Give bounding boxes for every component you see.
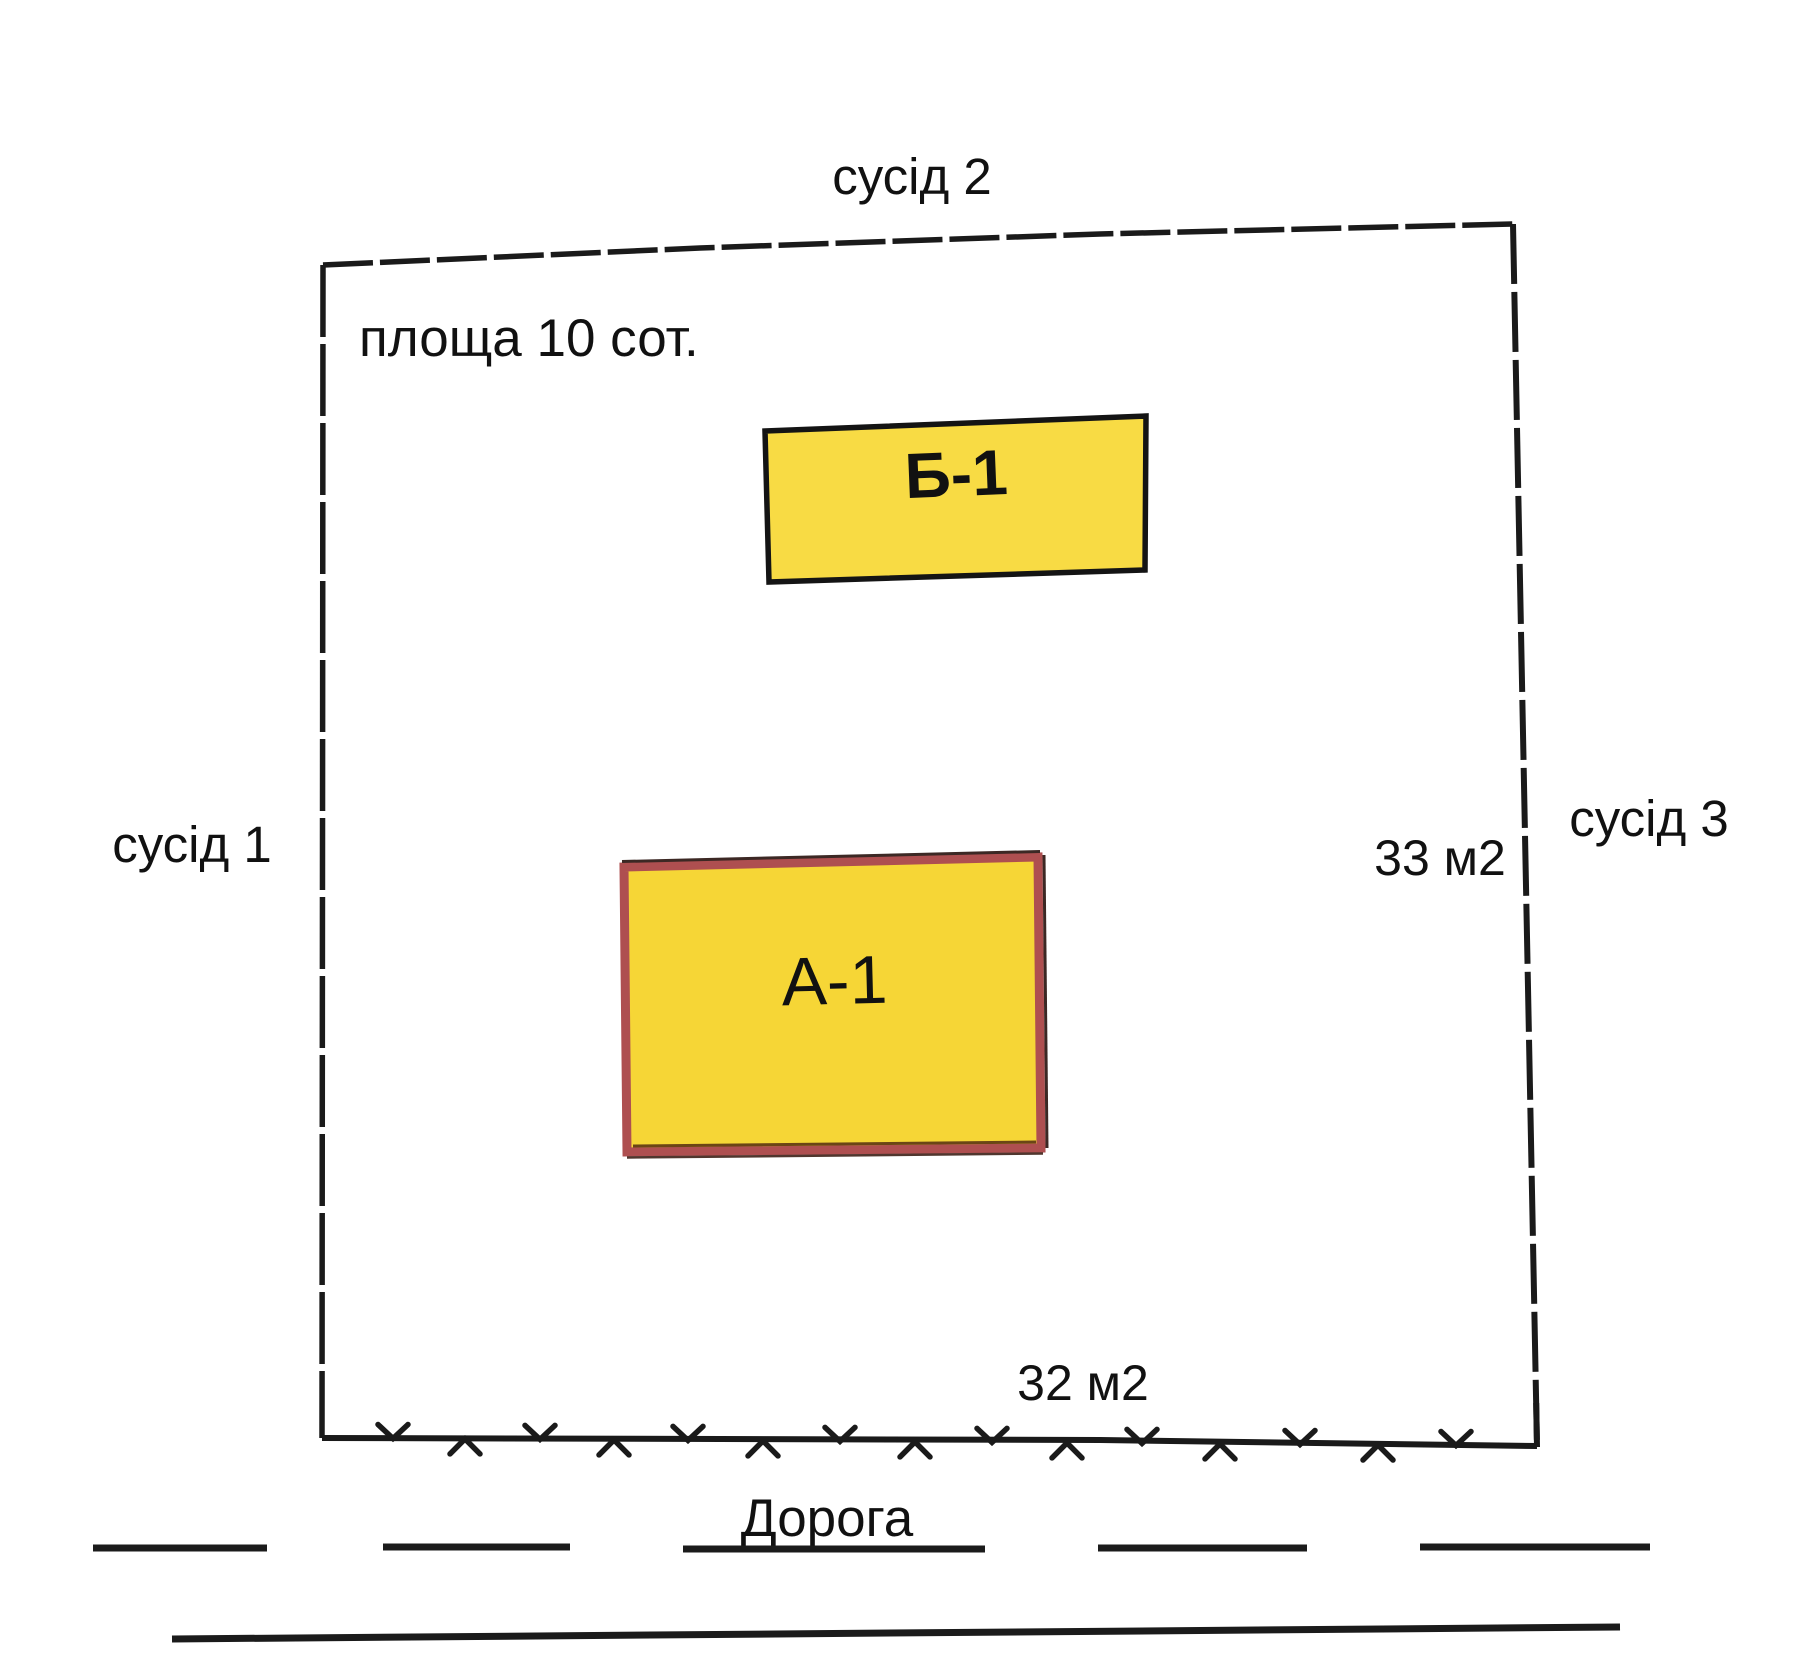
svg-text:Дорога: Дорога	[741, 1489, 914, 1548]
svg-text:Б-1: Б-1	[903, 436, 1009, 512]
svg-text:площа 10 сот.: площа 10 сот.	[359, 309, 699, 368]
svg-text:сусід 2: сусід 2	[832, 148, 992, 205]
svg-text:А-1: А-1	[781, 942, 889, 1021]
svg-text:сусід 3: сусід 3	[1569, 790, 1729, 847]
svg-text:32 м2: 32 м2	[1017, 1355, 1149, 1411]
svg-text:сусід 1: сусід 1	[112, 816, 272, 873]
svg-text:33 м2: 33 м2	[1374, 830, 1506, 886]
